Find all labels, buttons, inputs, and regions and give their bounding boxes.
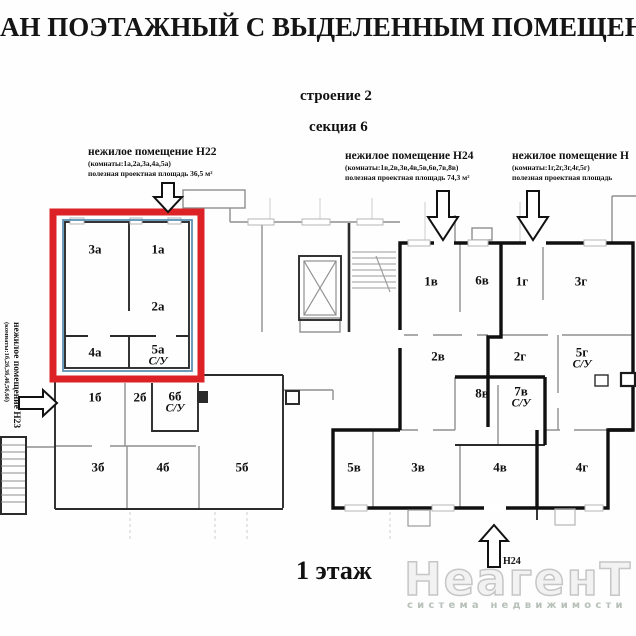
- room-label-5v: 5в: [347, 461, 361, 474]
- premise-rooms-note: (комнаты:1б,2б,3б,4б,5б,6б): [1, 322, 9, 482]
- premise-h25-label: нежилое помещение Н (комнаты:1г,2г,3г,4г…: [512, 149, 629, 182]
- room-label-8v: 8в: [475, 387, 489, 400]
- room-label-2a: 2а: [152, 300, 165, 313]
- room-label-3b: 3б: [92, 461, 105, 474]
- room-label-6b: 6бС/У: [166, 389, 185, 415]
- arrow-down-h24-icon: [428, 191, 458, 240]
- room-label-1g: 1г: [516, 275, 528, 288]
- premise-rooms-note: (комнаты:1г,2г,3г,4г,5г): [512, 163, 629, 172]
- premise-area-note: полезная проектная площадь 36,5 м²: [88, 169, 216, 178]
- premise-h23-label: нежилое помещение Н23 (комнаты:1б,2б,3б,…: [1, 322, 22, 482]
- premise-h22-label: нежилое помещение Н22 (комнаты:1а,2а,3а,…: [88, 145, 216, 178]
- premise-rooms-note: (комнаты:1а,2а,3а,4а,5а): [88, 159, 216, 168]
- watermark-logo: НеагенТ: [404, 553, 632, 606]
- page-title: АН ПОЭТАЖНЫЙ С ВЫДЕЛЕННЫМ ПОМЕЩЕНИЕ: [0, 12, 636, 43]
- room-label-5b: 5б: [236, 461, 249, 474]
- premise-name: нежилое помещение Н22: [88, 145, 216, 159]
- floor-label: 1 этаж: [296, 556, 372, 586]
- arrow-right-h23-icon: [19, 390, 57, 416]
- elevator-icon: [299, 256, 341, 320]
- room-label-4a: 4а: [89, 346, 102, 359]
- room-label-3g: 3г: [575, 275, 587, 288]
- room-label-3a: 3а: [89, 243, 102, 256]
- highlight-rectangle: [53, 212, 201, 379]
- stairs-icon: [352, 252, 396, 292]
- room-label-4g: 4г: [576, 461, 588, 474]
- watermark-tagline: система недвижимости: [407, 600, 627, 611]
- room-label-4b: 4б: [157, 461, 170, 474]
- section-label: секция 6: [309, 119, 368, 136]
- premise-name: нежилое помещение Н: [512, 149, 629, 163]
- arrow-down-h22-icon: [154, 183, 182, 212]
- premise-area-note: полезная проектная площадь: [512, 173, 629, 182]
- room-label-4v: 4в: [493, 461, 507, 474]
- premise-name: нежилое помещение Н23: [10, 322, 22, 482]
- room-label-2g: 2г: [514, 350, 526, 363]
- room-label-5g: 5гС/У: [573, 345, 592, 371]
- premise-area-note: полезная проектная площадь 74,3 м²: [345, 173, 473, 182]
- building-label: строение 2: [300, 88, 372, 105]
- arrow-down-h25-icon: [518, 191, 548, 240]
- room-label-1a: 1а: [152, 243, 165, 256]
- premise-rooms-note: (комнаты:1в,2в,3в,4в,5в,6в,7в,8в): [345, 163, 473, 172]
- room-label-6v: 6в: [475, 274, 489, 287]
- room-label-7v: 7вС/У: [512, 384, 531, 410]
- room-label-5a: 5аС/У: [149, 342, 168, 368]
- premise-name: нежилое помещение Н24: [345, 149, 473, 163]
- premise-h24-label: нежилое помещение Н24 (комнаты:1в,2в,3в,…: [345, 149, 473, 182]
- light-walls: [26, 190, 636, 509]
- room-label-3v: 3в: [411, 461, 425, 474]
- room-label-2v: 2в: [431, 350, 445, 363]
- fixtures: [197, 373, 635, 526]
- room-label-1b: 1б: [89, 391, 102, 404]
- floor-plan-page: АН ПОЭТАЖНЫЙ С ВЫДЕЛЕННЫМ ПОМЕЩЕНИЕ стро…: [0, 0, 636, 636]
- room-label-2b: 2б: [134, 391, 147, 404]
- room-label-1v: 1в: [424, 275, 438, 288]
